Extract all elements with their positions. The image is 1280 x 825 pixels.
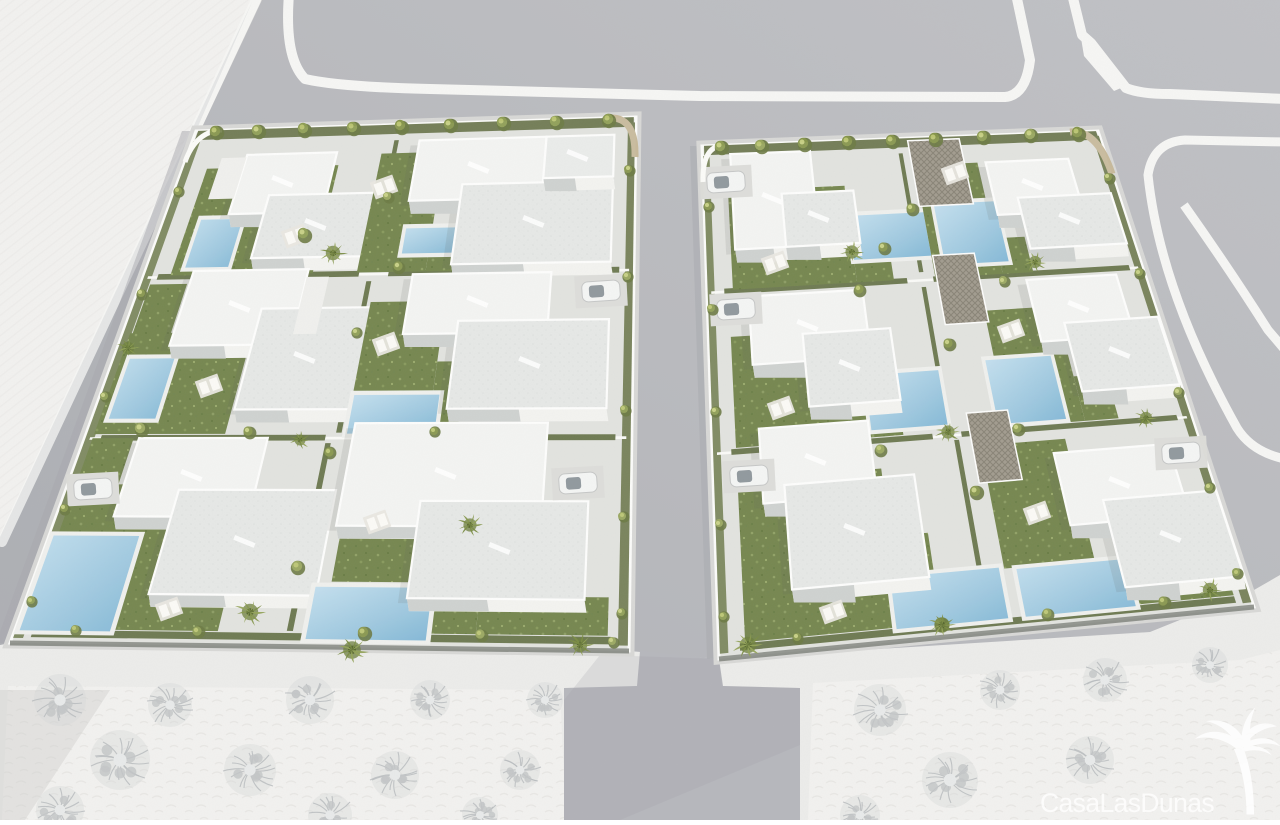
svg-text:CasaLasDunas: CasaLasDunas <box>1040 788 1214 818</box>
